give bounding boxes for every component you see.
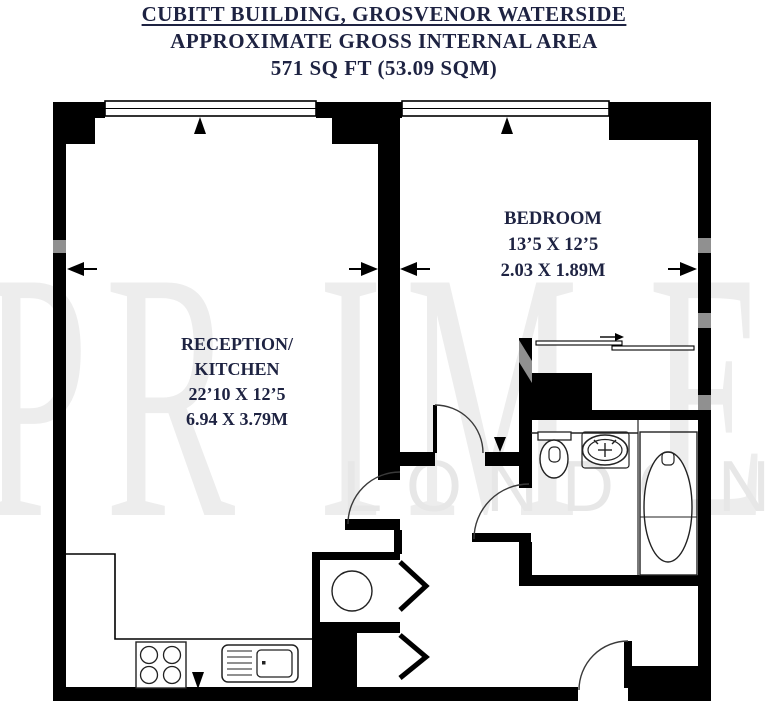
area-value: 571 SQ FT (53.09 SQM): [0, 56, 768, 81]
arrow-right-icon: [361, 262, 378, 276]
toilet: [538, 432, 571, 478]
plan-title: CUBITT BUILDING, GROSVENOR WATERSIDE APP…: [0, 2, 768, 81]
area-caption: APPROXIMATE GROSS INTERNAL AREA: [0, 29, 768, 54]
utility-bifold-door-bottom: [400, 635, 426, 678]
building-name: CUBITT BUILDING, GROSVENOR WATERSIDE: [0, 2, 768, 27]
room-name: RECEPTION/: [87, 332, 387, 357]
bedroom-door: [433, 405, 483, 453]
arrow-down-icon: [192, 672, 204, 689]
arrow-up-icon: [194, 117, 206, 134]
window-left: [105, 101, 316, 116]
arrow-left-icon: [67, 262, 84, 276]
room-name: KITCHEN: [87, 357, 387, 382]
entrance-door: [579, 641, 632, 690]
kitchen-counter: [66, 554, 312, 639]
bathtub: [640, 432, 697, 575]
reception-kitchen-label: RECEPTION/ KITCHEN 22’10 X 12’5 6.94 X 3…: [87, 332, 387, 432]
floorplan-page: P R I M E LONDON: [0, 0, 768, 705]
basin: [582, 432, 629, 468]
room-dims-imperial: 22’10 X 12’5: [87, 382, 387, 407]
room-name: BEDROOM: [403, 206, 703, 232]
bedroom-label: BEDROOM 13’5 X 12’5 2.03 X 1.89M: [403, 206, 703, 284]
room-dims-metric: 2.03 X 1.89M: [403, 258, 703, 284]
slide-arrow-icon: [615, 333, 624, 341]
window-right: [402, 101, 609, 116]
arrow-up-icon: [501, 117, 513, 134]
kitchen-sink: [222, 645, 298, 682]
utility-bifold-door-top: [400, 562, 426, 610]
bathroom-door: [472, 484, 531, 542]
wardrobe-sliding-door: [536, 333, 694, 350]
room-dims-metric: 6.94 X 3.79M: [87, 407, 387, 432]
arrow-down-icon: [494, 437, 506, 452]
washing-machine: [332, 571, 372, 611]
hob: [136, 642, 186, 688]
room-dims-imperial: 13’5 X 12’5: [403, 232, 703, 258]
